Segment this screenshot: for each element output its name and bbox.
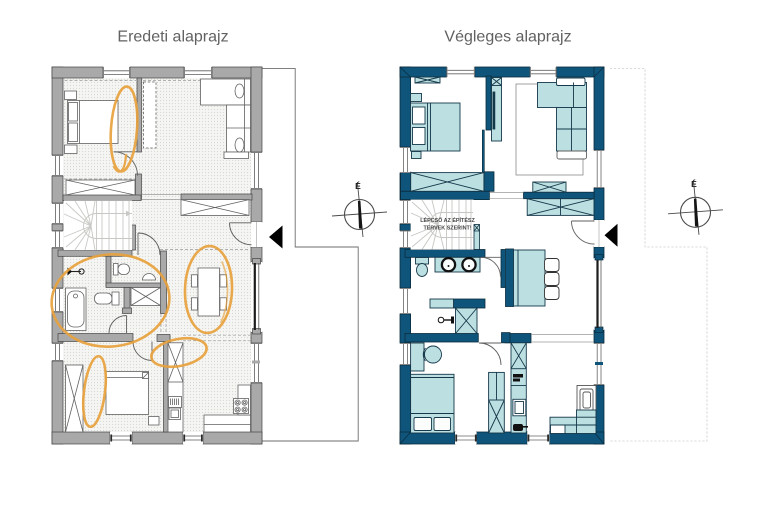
svg-text:LÉPCSŐ AZ ÉPÍTÉSZ: LÉPCSŐ AZ ÉPÍTÉSZ [420,216,475,224]
svg-text:É: É [355,181,361,191]
svg-text:Végleges alaprajz: Végleges alaprajz [444,29,571,46]
svg-text:TERVEK SZERINT!: TERVEK SZERINT! [423,226,471,232]
svg-text:É: É [691,179,697,189]
svg-text:Eredeti alaprajz: Eredeti alaprajz [117,29,228,46]
